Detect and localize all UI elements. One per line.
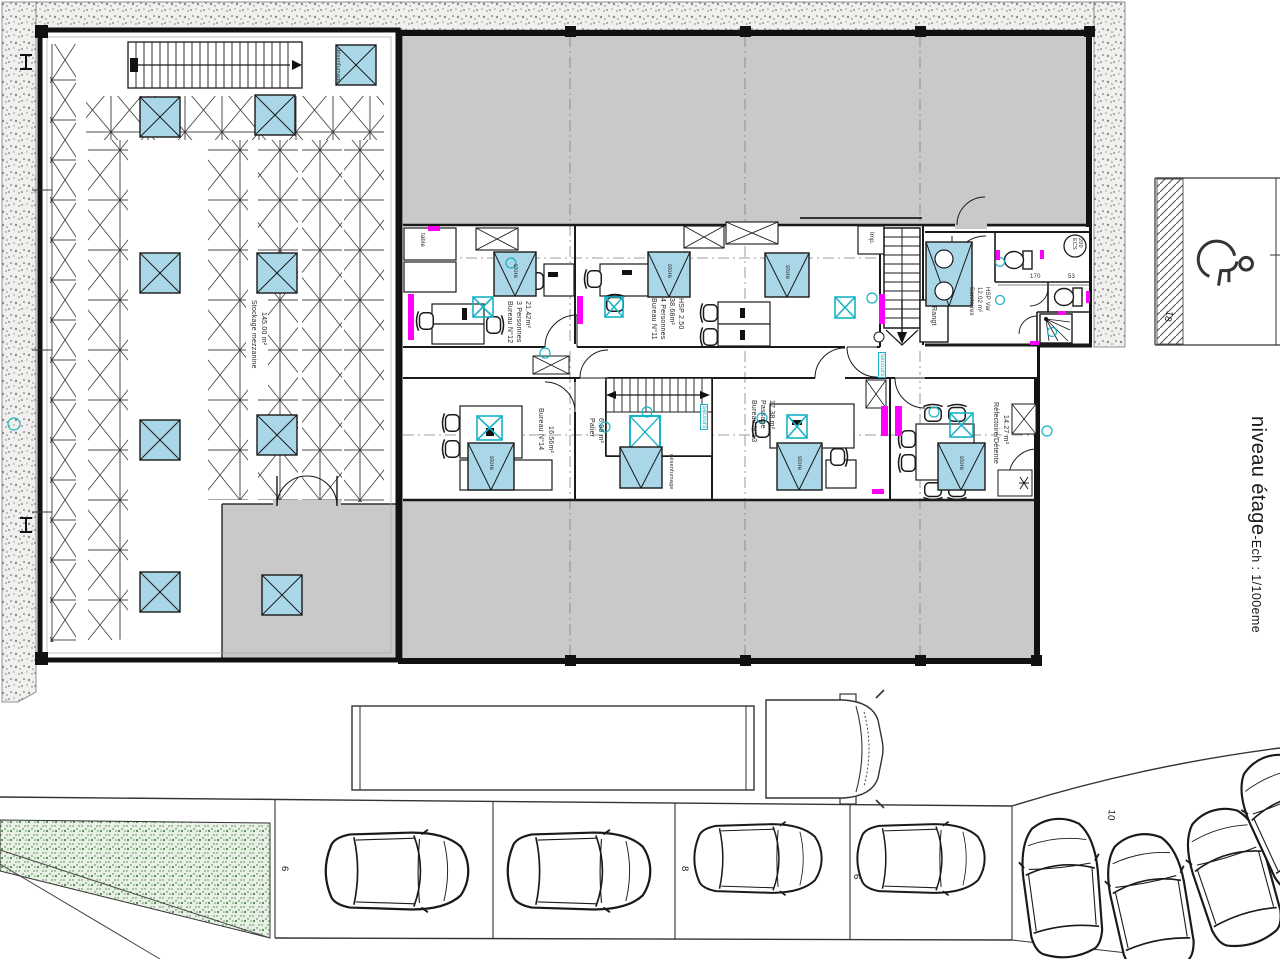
- room-area-bureau13: 17.38 m²: [768, 400, 775, 429]
- desk: [770, 404, 854, 448]
- truck-trailer: [352, 706, 754, 790]
- skylight: [140, 420, 180, 460]
- store-label: store: [958, 456, 964, 470]
- cabinet: [866, 380, 886, 408]
- delivery-truck: [352, 690, 884, 808]
- dimension-170: 170: [1030, 274, 1041, 280]
- room-height-bureau11: HSP 2.50: [677, 298, 684, 329]
- chair: [487, 315, 504, 334]
- parking-count: 6: [280, 866, 290, 871]
- central-stair-core: [606, 378, 712, 488]
- floor-plan-page: niveau étage-Ech : 1/100eme Stockage mez…: [0, 0, 1280, 959]
- cabinet: [533, 356, 569, 374]
- rack-row: [88, 140, 128, 640]
- green-landscape: [0, 820, 270, 938]
- chair: [701, 327, 718, 346]
- smoke-vent-label: désenfumage: [335, 48, 341, 84]
- store-label: store: [784, 265, 790, 279]
- chair: [585, 269, 602, 288]
- left-border-band: [2, 2, 36, 702]
- store-label: store: [512, 264, 518, 278]
- room-label-rangt: Rangt: [930, 306, 937, 326]
- car: [857, 822, 984, 896]
- cabinet: [476, 228, 518, 250]
- printer-label: Imp.: [868, 232, 874, 244]
- toilet: [1055, 288, 1083, 306]
- rack-row: [344, 140, 384, 502]
- skylight: [140, 253, 180, 293]
- rack-row: [50, 44, 76, 642]
- right-border-band: [1094, 2, 1125, 347]
- room-height-sanitaires: HSP Var: [984, 287, 990, 311]
- emergency-exit-label: secours: [700, 404, 708, 430]
- table: [404, 228, 456, 260]
- chair: [899, 453, 916, 472]
- plan-title: niveau étage-Ech : 1/100eme: [1248, 416, 1268, 633]
- desk: [544, 264, 574, 296]
- mezzanine-stair: [128, 42, 302, 88]
- skylight: [255, 95, 295, 135]
- cabinet: [1012, 404, 1036, 434]
- chair: [443, 439, 460, 458]
- skylight: [257, 253, 297, 293]
- room-capacity-bureau12: 3 Personnes: [515, 301, 522, 343]
- water-heater-capacity: 200: [1077, 238, 1083, 248]
- room-area-bureau11: 38.68m²: [668, 298, 675, 325]
- truck-cab: [766, 690, 884, 808]
- sink: [935, 250, 953, 268]
- roof-zone-bottom: [403, 500, 1037, 660]
- store-label: store: [488, 456, 494, 470]
- room-area-refectoire: 14.27 m²: [1002, 415, 1009, 444]
- car: [1097, 827, 1202, 959]
- rack-row: [86, 96, 384, 140]
- emergency-exit-label: secours: [878, 352, 886, 378]
- room-label-bureau14: Bureau N°14: [537, 408, 544, 450]
- dimension-53: 53: [1068, 274, 1075, 280]
- floor-plan-drawing: [0, 0, 1280, 959]
- sink: [935, 282, 953, 300]
- water-heater-label: ECS: [1071, 238, 1077, 250]
- cabinet: [684, 226, 724, 248]
- cabinet: [726, 222, 778, 244]
- disabled-parking-area: [1155, 178, 1280, 345]
- store-label: store: [796, 456, 802, 470]
- chair: [417, 311, 434, 330]
- warehouse-label: Stockage mezzanine: [250, 300, 257, 369]
- smoke-vent-skylight: [620, 447, 662, 488]
- toilet: [1005, 251, 1033, 269]
- room-area-bureau12: 21.42m²: [524, 301, 531, 328]
- smoke-vent-label: désenfumage: [668, 454, 674, 490]
- roof-zone-warehouse-se: [222, 504, 398, 658]
- chair: [443, 413, 460, 432]
- skylight: [257, 415, 297, 455]
- smoke-vent-skylight: [336, 45, 376, 85]
- car: [326, 830, 469, 913]
- disabled-parking-count: 18: [1162, 310, 1174, 323]
- car: [1015, 815, 1109, 959]
- door-gap: [273, 500, 341, 508]
- chair: [701, 303, 718, 322]
- room-label-sanitaires: Sanitaires: [968, 287, 974, 316]
- skylight: [140, 572, 180, 612]
- warehouse-area: 145.00 m²: [260, 312, 267, 345]
- table-label: table: [419, 233, 425, 247]
- room-subtitle-bureau13: Passage: [759, 400, 766, 429]
- rack-row: [208, 140, 248, 500]
- rack-row: [302, 140, 342, 502]
- room-label-bureau13: Bureau N°13: [750, 400, 757, 442]
- skylight: [140, 97, 180, 137]
- plan-title-scale: -Ech : 1/100eme: [1249, 535, 1263, 633]
- parking-count: 8: [680, 866, 690, 871]
- car: [508, 830, 651, 913]
- top-border-band: [30, 2, 1122, 30]
- store-label: store: [666, 264, 672, 278]
- wheelchair-icon: [1198, 241, 1252, 285]
- skylight: [262, 575, 302, 615]
- desk: [600, 264, 652, 296]
- room-capacity-bureau11: 4 Personnes: [659, 298, 666, 340]
- plan-title-main: niveau étage: [1247, 416, 1269, 535]
- room-label-refectoire: Réfectoire/Détente: [992, 402, 999, 464]
- parking-count-right: 10: [1105, 809, 1116, 821]
- room-area-sanitaires: 12.02 m²: [976, 287, 982, 312]
- room-area-palier: 6.96 m²: [597, 418, 604, 443]
- room-label-bureau11: Bureau N°11: [650, 298, 657, 340]
- room-label-bureau12: Bureau N°12: [506, 301, 513, 343]
- vanity-counter: [926, 242, 972, 306]
- room-area-bureau14: 16.56m²: [547, 426, 554, 453]
- shower: [1040, 314, 1072, 343]
- desk: [432, 324, 484, 344]
- car: [694, 822, 821, 896]
- room-label-palier: Palier: [588, 418, 595, 437]
- parking-count: 6: [852, 874, 862, 879]
